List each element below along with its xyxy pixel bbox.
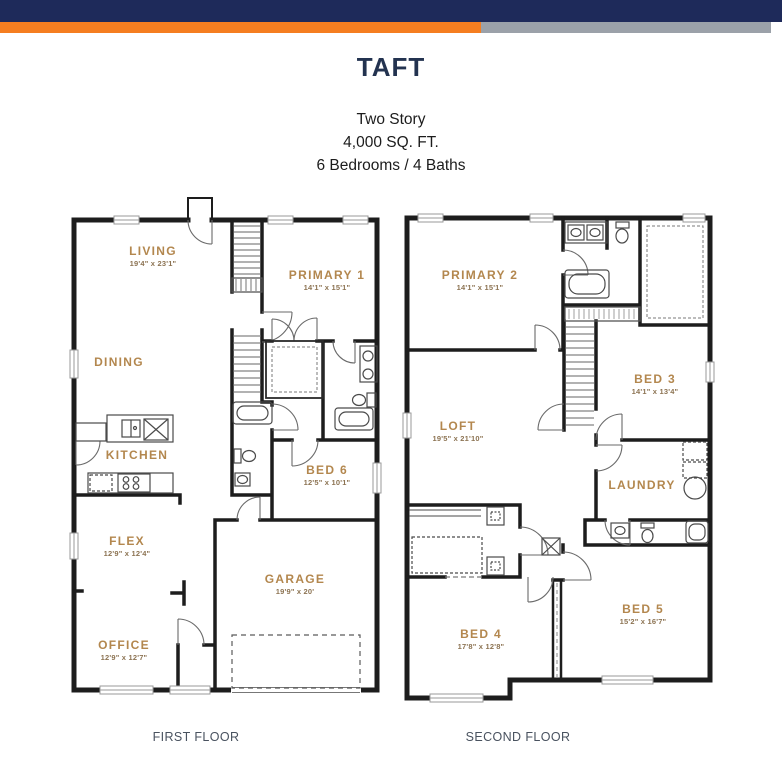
spec-sqft: 4,000 SQ. FT. (0, 131, 782, 154)
landing-hatch (569, 309, 634, 319)
walkin-closet-shelves (647, 226, 703, 318)
plan-title: TAFT (0, 52, 782, 83)
header-orange-bar (0, 22, 481, 33)
room-label-living: LIVING 19'4" x 23'1" (129, 244, 177, 268)
header-gray-bar (481, 22, 771, 33)
primary-bath-fixtures (565, 222, 629, 298)
front-porch (188, 198, 212, 220)
room-label-bed6: BED 6 12'5" x 10'1" (304, 463, 351, 487)
spec-beds-baths: 6 Bedrooms / 4 Baths (0, 154, 782, 177)
room-label-bed5: BED 5 15'2" x 16'7" (620, 602, 667, 626)
divider-wall (553, 580, 561, 680)
room-label-laundry: LAUNDRY (608, 478, 675, 492)
room-label-kitchen: KITCHEN (106, 448, 168, 462)
hall-bath-fixtures (611, 521, 708, 543)
room-label-primary1: PRIMARY 1 14'1" x 15'1" (289, 268, 365, 292)
room-label-dining: DINING (94, 355, 144, 369)
closet-shelves (272, 347, 317, 392)
room-label-bed4: BED 4 17'8" x 12'8" (458, 627, 505, 651)
room-label-office: OFFICE 12'9" x 12'7" (98, 638, 150, 662)
hall-closets (409, 507, 560, 575)
garage-door-dashed (232, 635, 360, 688)
room-label-garage: GARAGE 19'9" x 20' (265, 572, 325, 596)
room-label-bed3: BED 3 14'1" x 13'4" (632, 372, 679, 396)
room-label-loft: LOFT 19'5" x 21'10" (432, 419, 483, 443)
first-floor-caption: FIRST FLOOR (153, 730, 240, 744)
plan-specs: Two Story 4,000 SQ. FT. 6 Bedrooms / 4 B… (0, 108, 782, 177)
room-label-primary2: PRIMARY 2 14'1" x 15'1" (442, 268, 518, 292)
second-floor-caption: SECOND FLOOR (466, 730, 571, 744)
door-swings (520, 250, 630, 602)
stairs (566, 327, 594, 425)
stair-landing (232, 278, 262, 292)
header-navy-bar (0, 0, 782, 22)
hall-bath-fixtures (233, 402, 272, 486)
primary-closet (266, 341, 323, 398)
stairs (233, 226, 261, 392)
spec-stories: Two Story (0, 108, 782, 131)
room-label-flex: FLEX 12'9" x 12'4" (104, 534, 151, 558)
laundry-fixtures (683, 442, 707, 499)
floor-plan-sheet: TAFT Two Story 4,000 SQ. FT. 6 Bedrooms … (0, 0, 782, 768)
